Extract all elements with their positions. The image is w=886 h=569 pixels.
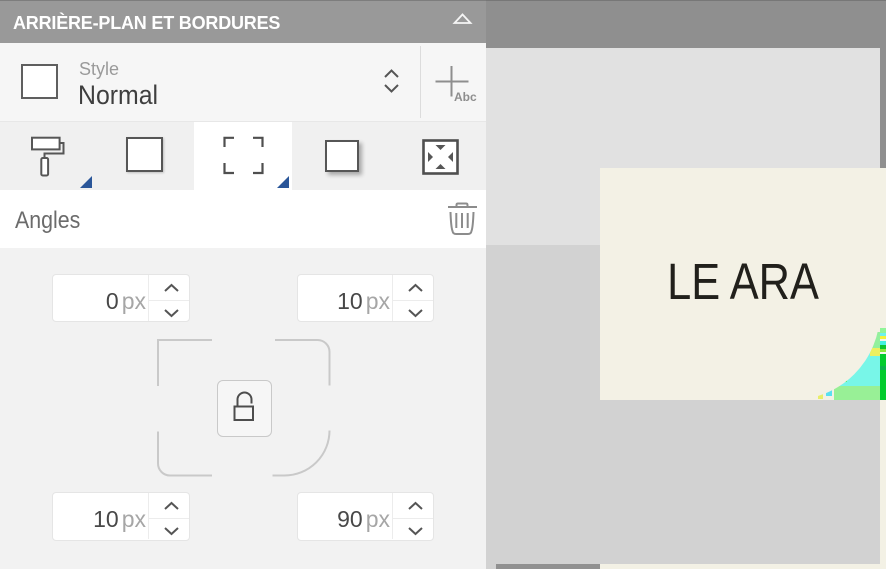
svg-text:Abc: Abc: [454, 90, 477, 104]
